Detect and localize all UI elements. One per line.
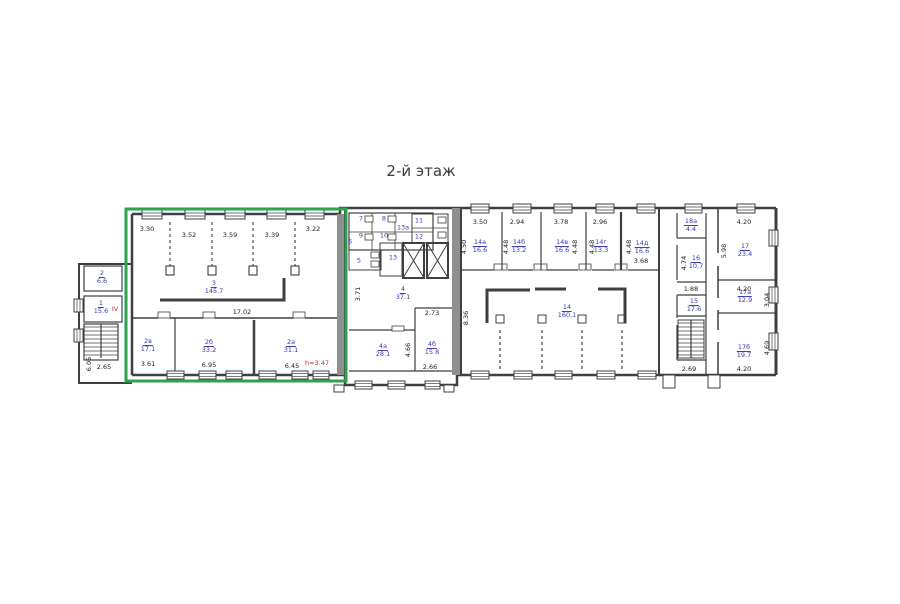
window-symbol — [185, 210, 205, 219]
dim-window-5: 3.22 — [306, 225, 320, 233]
window-symbol — [313, 371, 329, 379]
staircase-right — [678, 320, 704, 358]
window-symbol — [737, 204, 755, 213]
dim-room14g-height: 4.48 — [588, 240, 596, 254]
window-symbol — [554, 204, 572, 213]
dim-room17b-width: 4.20 — [737, 365, 751, 373]
room-14d-label: 14д16.6 — [635, 240, 650, 256]
room-6-label: 6 — [347, 238, 353, 245]
room-2v-label: 2в17.1 — [141, 338, 155, 354]
window-symbol — [637, 204, 655, 213]
dim-right-window-3: 3.78 — [554, 218, 568, 226]
dim-room14d-height: 4.48 — [625, 240, 633, 254]
window-symbol — [471, 204, 489, 213]
dim-room2a-width: 6.45 — [285, 362, 299, 370]
dim-room4b-top: 2.73 — [425, 309, 439, 317]
dim-room17-height: 5.98 — [720, 244, 728, 258]
window-symbol — [514, 371, 532, 379]
window-symbol — [267, 210, 286, 219]
window-symbol — [292, 371, 308, 379]
window-symbol — [513, 204, 531, 213]
dim-room17-width: 4.20 — [737, 218, 751, 226]
room-8-label: 8 — [381, 215, 387, 222]
dim-window-3: 3.59 — [223, 231, 237, 239]
room-9-label: 9 — [358, 232, 364, 239]
dim-lobby: 1.88 — [684, 285, 698, 293]
dim-wing-width: 2.65 — [97, 363, 111, 371]
room-13-label: 13 — [388, 254, 398, 261]
room-13a-label: 13а — [396, 224, 410, 231]
window-symbol — [638, 371, 656, 379]
room-4a-label: 4а28.1 — [376, 343, 390, 359]
room-4-label: 437.1 — [396, 286, 410, 302]
window-symbol — [471, 371, 489, 379]
dim-hall-height: 8.36 — [462, 311, 470, 325]
window-symbol — [555, 371, 572, 379]
room-2-label: 26.6 — [97, 270, 107, 286]
dim-room17a-height: 3.04 — [763, 293, 771, 307]
window-symbol — [142, 210, 162, 219]
window-symbol — [305, 210, 324, 219]
room-10-label: 10 — [379, 232, 389, 239]
elevator-shafts — [403, 243, 448, 278]
window-symbol — [167, 371, 184, 379]
room-14b-label: 14б13.2 — [512, 239, 526, 255]
room-14a-label: 14а16.6 — [473, 239, 487, 255]
room-11-label: 11 — [414, 217, 424, 224]
room-3-label: 3145.7 — [205, 280, 224, 296]
dim-right-window-1: 3.50 — [473, 218, 487, 226]
dim-right-window-2: 2.94 — [510, 218, 524, 226]
window-symbol — [596, 204, 614, 213]
dim-room4a-height: 4.66 — [404, 343, 412, 357]
dim-room17a-width: 4.20 — [737, 285, 751, 293]
window-symbol — [225, 210, 245, 219]
room-14-label: 14160.1 — [558, 304, 577, 320]
room-12-label: 12 — [414, 233, 424, 240]
dim-wing-height: 6.05 — [85, 357, 93, 371]
room-18a-label: 18а4.4 — [684, 218, 698, 234]
column-axes-room3 — [166, 222, 299, 275]
room-5-label: 5 — [356, 257, 362, 264]
dim-room2b-width: 6.95 — [202, 361, 216, 369]
right-block-walls — [461, 208, 659, 375]
window-symbol — [425, 381, 440, 389]
dim-room14d-width: 3.68 — [634, 257, 648, 265]
room-14v-label: 14в16.6 — [555, 239, 569, 255]
staircase-left — [84, 324, 118, 358]
dim-right-window-4: 2.96 — [593, 218, 607, 226]
window-symbol — [259, 371, 276, 379]
dim-room14v-height: 4.48 — [571, 240, 579, 254]
dim-stair-width: 2.69 — [682, 365, 696, 373]
dim-room16-height: 4.74 — [680, 256, 688, 270]
dim-room4b-bottom: 2.66 — [423, 363, 437, 371]
dim-corridor: 3.71 — [354, 287, 362, 301]
room-1-label: 115.6 — [94, 300, 108, 316]
room-16-label: 1610.7 — [689, 255, 703, 271]
room-4b-label: 4б15.8 — [425, 341, 439, 357]
room-15-label: 1517.6 — [687, 298, 701, 314]
room-17-label: 1723.4 — [738, 243, 752, 259]
room-2b-label: 2б33.2 — [202, 339, 216, 355]
window-symbol — [597, 371, 615, 379]
dim-room3-width: 17.02 — [233, 308, 252, 316]
window-symbol — [74, 299, 83, 312]
window-symbol — [388, 381, 405, 389]
dim-window-4: 3.39 — [265, 231, 279, 239]
room-2a-label: 2а31.1 — [284, 339, 298, 355]
window-symbol — [769, 230, 778, 246]
window-symbol — [74, 329, 83, 342]
dim-window-1: 3.30 — [140, 225, 154, 233]
dim-window-2: 3.52 — [182, 231, 196, 239]
dim-room14a-height: 4.50 — [460, 240, 468, 254]
floor-plan-page: 2-й этаж 26.6 115.6 3145.7 2в17.1 2б33.2… — [0, 0, 900, 604]
ceiling-height-note: h=3.47 — [305, 359, 329, 367]
window-symbol — [355, 381, 372, 389]
page-title: 2-й этаж — [386, 162, 455, 180]
dim-room14b-height: 4.48 — [502, 240, 510, 254]
room-17b-label: 17б19.7 — [737, 344, 751, 360]
window-symbol — [685, 204, 702, 213]
room-7-label: 7 — [358, 215, 364, 222]
window-symbol — [199, 371, 216, 379]
section-mark: IV — [112, 305, 118, 313]
dim-room2v-width: 3.61 — [141, 360, 155, 368]
dim-room17b-height: 4.69 — [763, 341, 771, 355]
window-symbol — [226, 371, 242, 379]
